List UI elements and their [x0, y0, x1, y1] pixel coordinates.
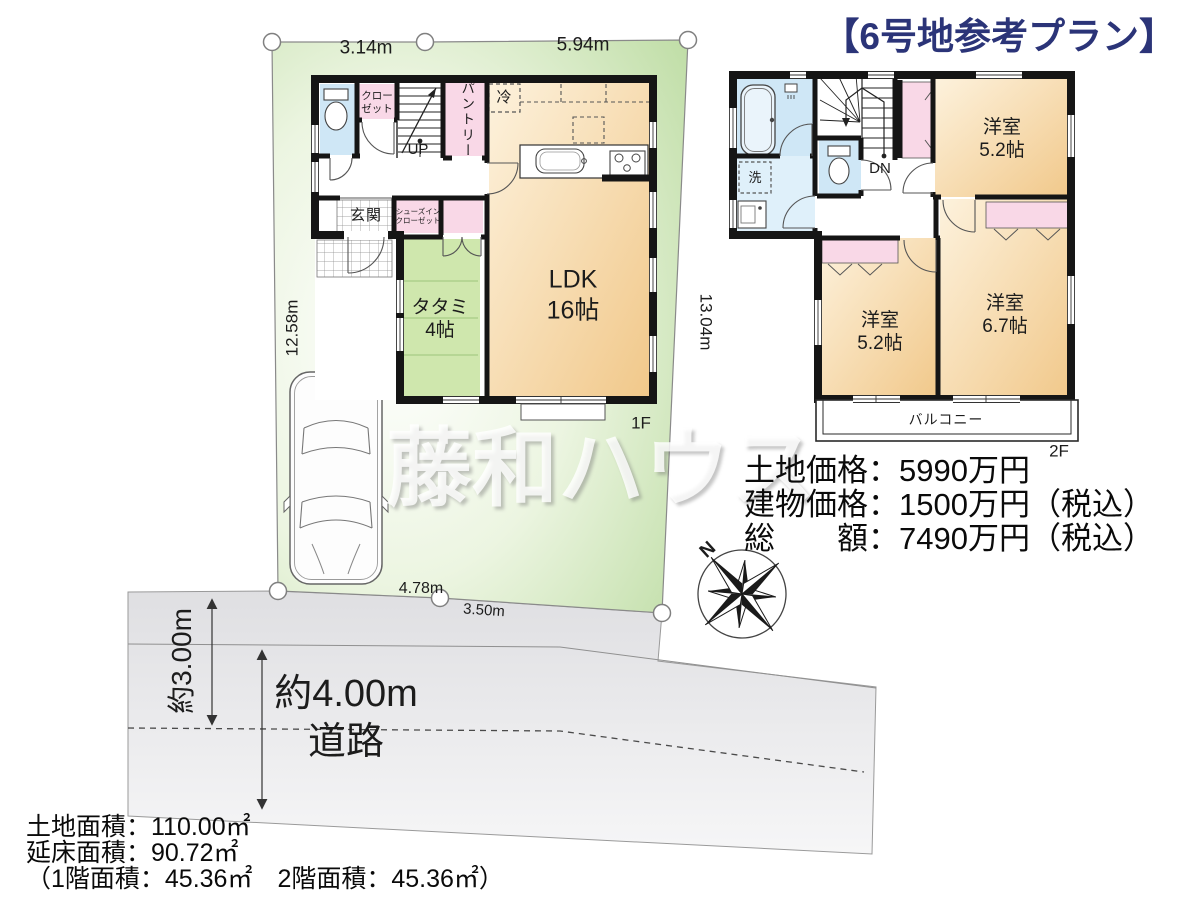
label-shoe-closet: シューズイン クローゼット: [396, 207, 441, 225]
kitchen-counter: [520, 145, 650, 178]
page-title: 【6号地参考プラン】: [822, 14, 1176, 59]
dim-bottom-right: 3.50m: [463, 600, 506, 621]
kitchen-sink: [536, 149, 584, 173]
road-label: 道路: [308, 719, 384, 765]
price-building: 建物価格：1500万円（税込）: [744, 486, 1154, 524]
entrance-porch: [317, 240, 392, 277]
label-ldk: LDK 16帖: [547, 265, 600, 326]
area-breakdown: （1階面積：45.36㎡ 2階面積：45.36㎡）: [26, 864, 504, 895]
washbasin-icon: [738, 201, 766, 228]
label-closet-1f: クロー ゼット: [361, 90, 393, 116]
floor1-label: 1F: [631, 414, 651, 435]
label-bedroom-b: 洋室 5.2帖: [857, 309, 902, 355]
label-bedroom-c: 洋室 6.7帖: [982, 292, 1027, 338]
price-land: 土地価格：5990万円: [744, 452, 1030, 490]
toilet-icon-2f: [828, 146, 850, 184]
label-bedroom-a: 洋室 5.2帖: [979, 116, 1024, 162]
price-total: 総 額：7490万円（税込）: [744, 520, 1154, 558]
floor2-label: 2F: [1049, 442, 1069, 463]
label-genkan: 玄関: [350, 207, 382, 225]
dim-left: 12.58m: [283, 300, 304, 357]
closet-bedroom-a: [902, 82, 933, 158]
label-stairs-down: DN: [869, 160, 891, 178]
floor1-plan: [311, 79, 657, 420]
toilet-icon-1f: [324, 89, 348, 130]
dim-bottom-left: 4.78m: [399, 579, 443, 599]
label-fridge: 冷: [496, 89, 511, 107]
label-tatami: タタミ 4帖: [411, 296, 468, 342]
dim-top-right: 5.94m: [557, 33, 610, 56]
floorplan-flyer: 藤和ハウス 【6号地参考プラン】 3.14m 5.94m 12.58m 13.0…: [0, 0, 1200, 900]
label-pantry: パントリー: [458, 81, 474, 159]
closet-bedroom-c: [986, 202, 1068, 228]
car-icon: [284, 372, 388, 584]
closet-bedroom-b: [822, 240, 898, 263]
label-stairs-up: UP: [408, 141, 429, 159]
floor2-plan: [729, 71, 1078, 441]
road-setback-label: 約3.00m: [165, 608, 199, 714]
bathtub-icon: [741, 85, 775, 155]
road-width-label: 約4.00m: [274, 671, 418, 717]
label-laundry: 洗: [748, 170, 761, 186]
label-balcony: バルコニー: [909, 411, 984, 428]
room-ldk: [489, 82, 649, 398]
dim-right: 13.04m: [695, 294, 716, 351]
dim-top-left: 3.14m: [340, 36, 393, 59]
